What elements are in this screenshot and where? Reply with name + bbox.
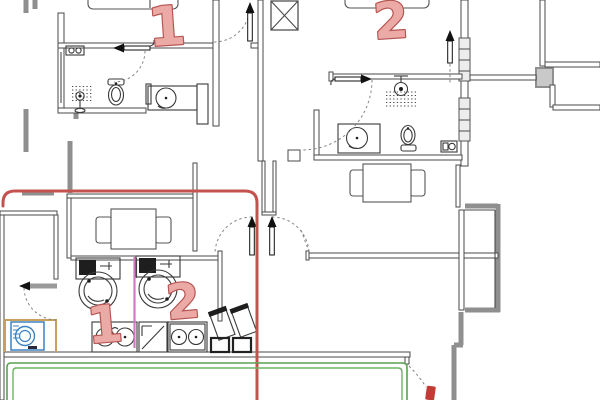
vanity-basin-1-icon — [146, 84, 208, 124]
dining-table-2 — [350, 164, 425, 202]
door-arrow-entry-left-icon — [248, 216, 257, 255]
door-arrow-kitchen-icon — [19, 282, 57, 291]
station-label-2: 2 — [164, 273, 202, 332]
sliding-door-arrow-bath1-icon — [113, 40, 154, 53]
room-label-bedroom-2: 2 — [372, 0, 411, 51]
room-label-bedroom-1: 1 — [146, 0, 188, 59]
area-rectangle-green — [7, 363, 407, 400]
door-arrow-entry-right-icon — [268, 216, 277, 255]
vanity-basin-2-icon — [338, 124, 380, 153]
toilet-1-icon — [108, 79, 124, 105]
floor-plan-canvas: 1 2 1 2 — [0, 0, 600, 400]
toilet-2-icon — [401, 126, 416, 152]
floor-plan-drawing: 1 2 1 2 — [0, 0, 600, 400]
dining-table-1 — [96, 209, 171, 249]
entry-marker-red — [425, 386, 436, 400]
elevator-shaft-icon — [271, 1, 298, 30]
shower-drain-2-icon — [386, 76, 416, 106]
bar-seat-icons — [208, 303, 258, 352]
counter-corner-icon — [139, 322, 167, 352]
door-arrow-east-icon — [446, 30, 455, 63]
station-label-1: 1 — [85, 295, 126, 357]
washer-valve-icon — [441, 141, 457, 152]
door-arrow-bedroom1-icon — [246, 2, 255, 41]
washing-machine-icon — [5, 320, 56, 352]
corner-pillar — [536, 68, 553, 87]
